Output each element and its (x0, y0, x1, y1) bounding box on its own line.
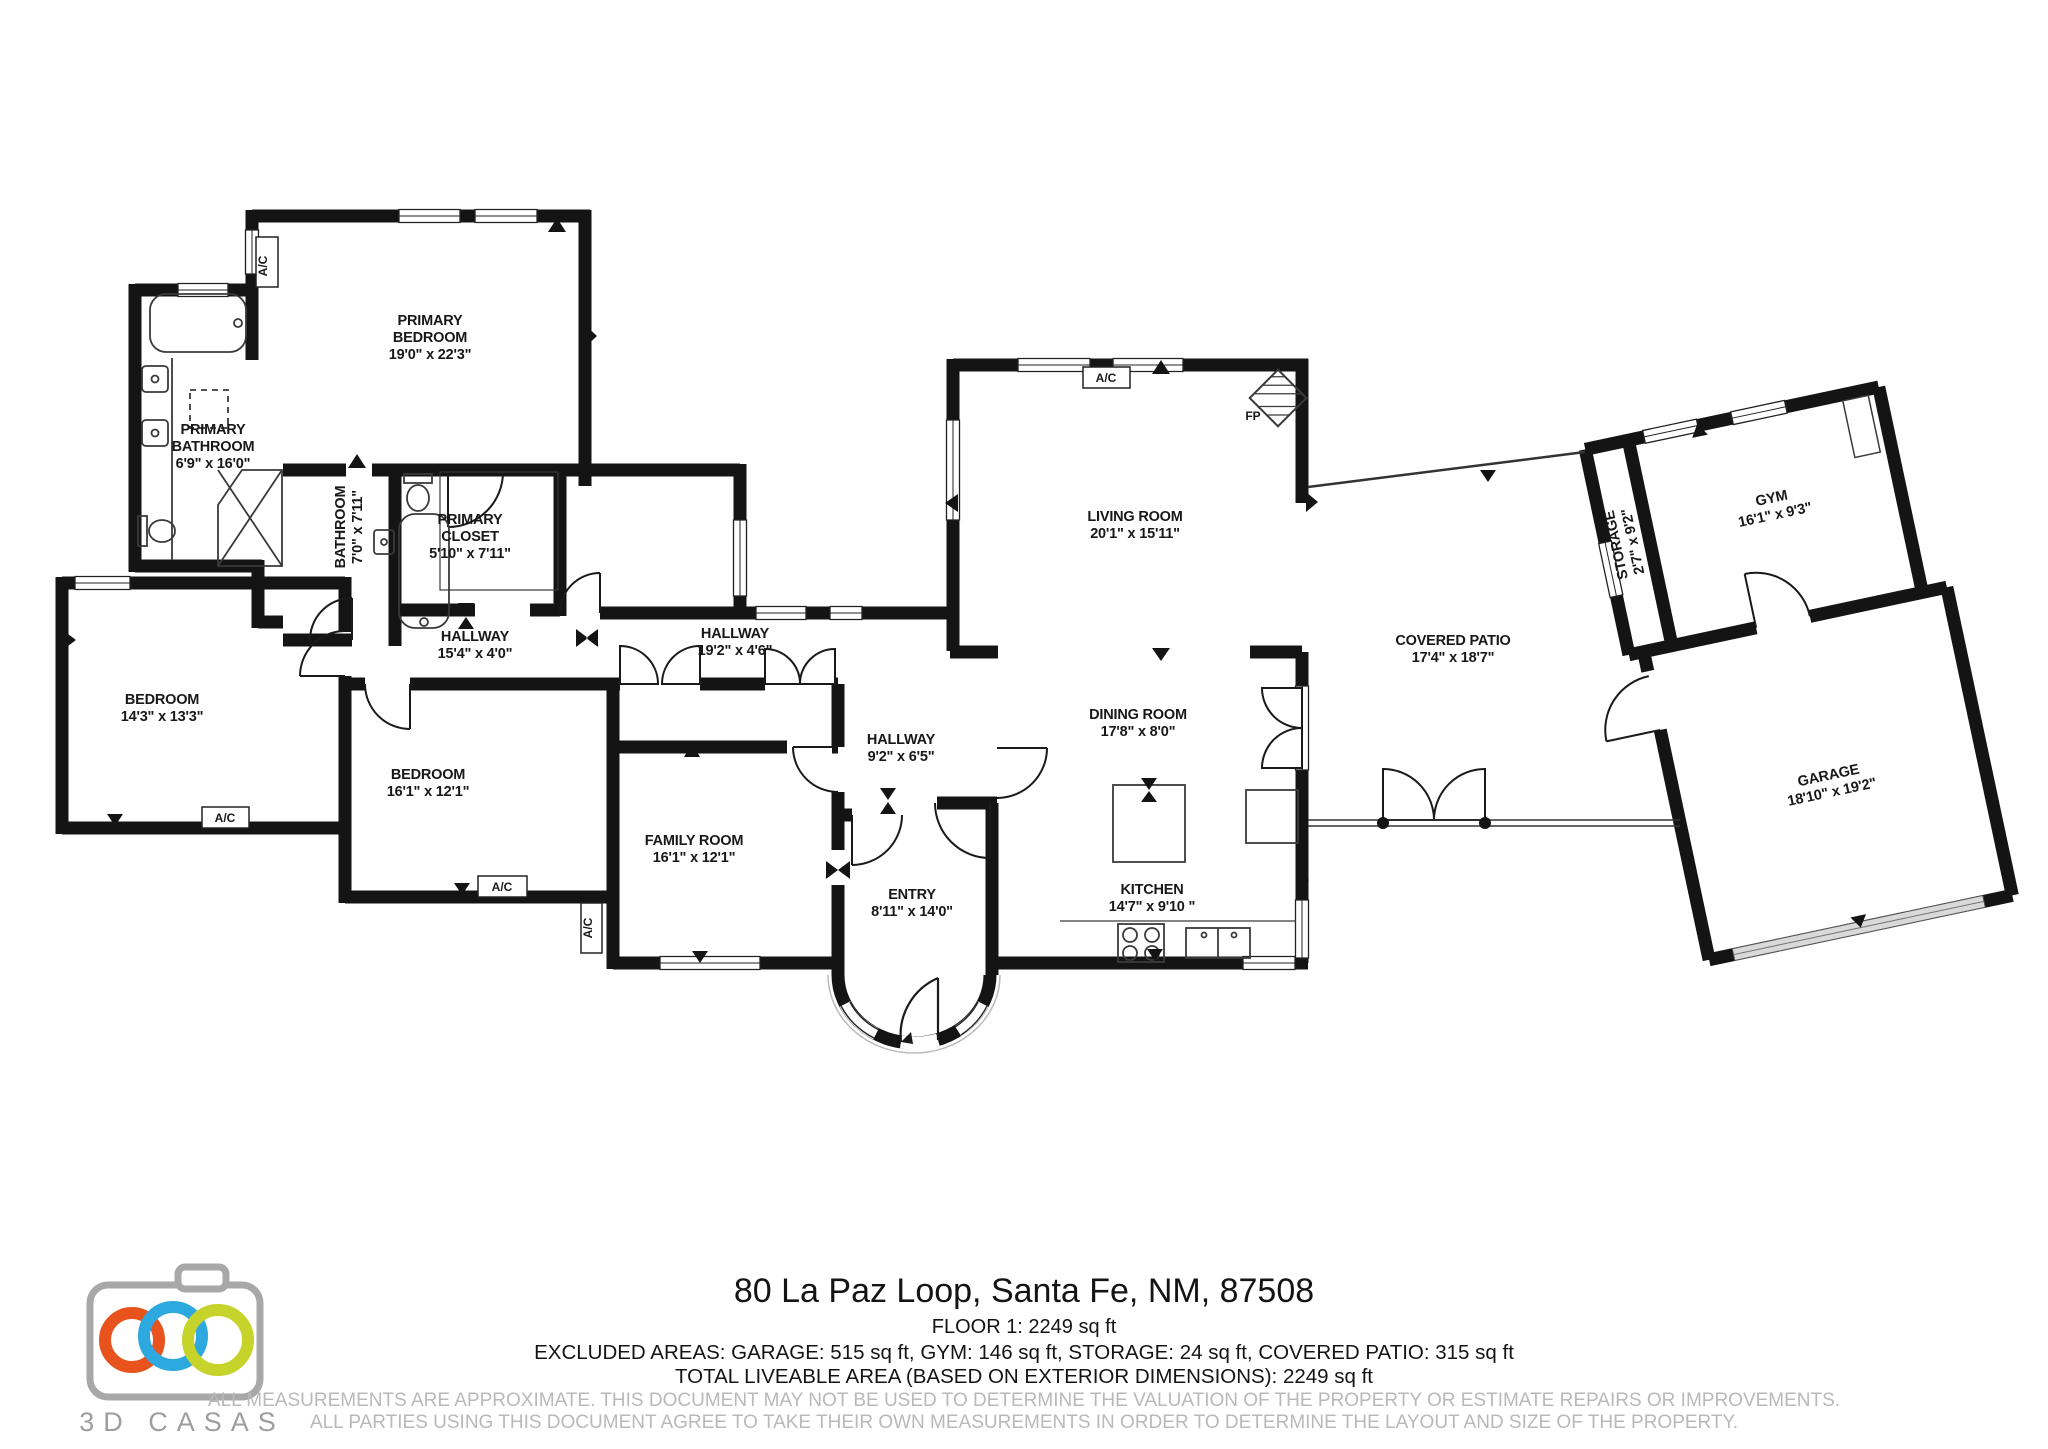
marker-label-ac-primary-bedroom: A/C (256, 255, 270, 276)
room-label-bedroom-16: BEDROOM16'1" x 12'1" (387, 767, 470, 800)
room-label-dining-room: DINING ROOM17'8" x 8'0" (1089, 707, 1187, 740)
entry-arch-wall (838, 975, 990, 1043)
room-label-covered-patio: COVERED PATIO17'4" x 18'7" (1395, 633, 1510, 666)
room-label-primary-closet: PRIMARYCLOSET5'10" x 7'11" (429, 512, 511, 562)
room-label-garage: GARAGE18'10" x 19'2" (1783, 759, 1878, 810)
room-label-bedroom-14: BEDROOM14'3" x 13'3" (121, 692, 204, 725)
room-label-entry: ENTRY8'11" x 14'0" (871, 887, 953, 920)
room-label-hallway-9: HALLWAY9'2" x 6'5" (867, 732, 936, 765)
room-label-kitchen: KITCHEN14'7" x 9'10 " (1109, 882, 1195, 915)
room-label-primary-bedroom: PRIMARYBEDROOM19'0" x 22'3" (389, 313, 472, 363)
tub-faucet (234, 319, 242, 327)
marker-label-fireplace: FP (1245, 409, 1260, 423)
outbuilding (1585, 382, 2012, 963)
total-area-line: TOTAL LIVEABLE AREA (BASED ON EXTERIOR D… (0, 1365, 2048, 1389)
floorplan-page: PRIMARYBEDROOM19'0" x 22'3"PRIMARYBATHRO… (0, 0, 2048, 1449)
arrows-layer (64, 218, 1869, 963)
entry-arch (828, 975, 1000, 1053)
property-address: 80 La Paz Loop, Santa Fe, NM, 87508 (0, 1272, 2048, 1311)
opening-arrows (64, 218, 1496, 963)
door-family-room (793, 747, 838, 792)
door-storage-side (1595, 676, 1660, 741)
door-kitchen (997, 748, 1047, 798)
outbuilding-walls (1585, 382, 2012, 963)
bathtub-primary (150, 294, 246, 352)
toilet (407, 485, 429, 511)
walls-layer (62, 210, 2012, 975)
double-doors (620, 646, 1485, 820)
floor-area-line: FLOOR 1: 2249 sq ft (0, 1316, 2048, 1339)
shower (218, 470, 282, 566)
sink (142, 366, 168, 392)
room-label-hallway-19: HALLWAY19'2" x 4'6" (698, 626, 773, 659)
sink (142, 420, 168, 446)
marker-label-ac-living-room: A/C (1096, 371, 1117, 385)
door-hallway9 (935, 803, 990, 858)
patio-edge-bottom (1308, 820, 1680, 826)
patio-post (1377, 817, 1389, 829)
room-label-bathroom: BATHROOM7'0" x 7'11" (333, 486, 366, 569)
front-door (901, 978, 938, 1044)
patio-post (1479, 817, 1491, 829)
door-gym (1745, 563, 1810, 628)
disclaimer-line-2: ALL PARTIES USING THIS DOCUMENT AGREE TO… (0, 1412, 2048, 1434)
marker-label-ac-bedroom-14: A/C (215, 811, 236, 825)
gym-closet (1843, 395, 1880, 457)
room-label-primary-bathroom: PRIMARYBATHROOM6'9" x 16'0" (172, 422, 255, 472)
room-label-living-room: LIVING ROOM20'1" x 15'11" (1087, 509, 1182, 542)
windows-layer (75, 210, 1985, 971)
marker-label-ac-family-room: A/C (581, 917, 595, 938)
room-label-family-room: FAMILY ROOM16'1" x 12'1" (645, 833, 744, 866)
cabinet (1246, 790, 1298, 843)
room-label-gym: GYM16'1" x 9'3" (1733, 483, 1813, 531)
room-label-hallway-15: HALLWAY15'4" x 4'0" (438, 629, 513, 662)
disclaimer-line-1: ALL MEASUREMENTS ARE APPROXIMATE. THIS D… (0, 1390, 2048, 1412)
marker-label-ac-bedroom-16: A/C (492, 880, 513, 894)
excluded-areas-line: EXCLUDED AREAS: GARAGE: 515 sq ft, GYM: … (0, 1341, 2048, 1365)
door-bedroom-16 (365, 684, 410, 729)
door-entry-stub (852, 815, 902, 865)
floor-plan-svg: PRIMARYBEDROOM19'0" x 22'3"PRIMARYBATHRO… (0, 0, 2048, 1449)
patio-edge-top (1308, 452, 1585, 487)
